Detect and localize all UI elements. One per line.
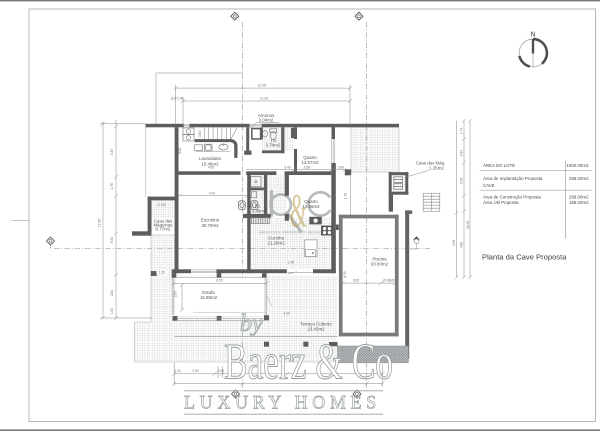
svg-text:268.00m2: 268.00m2: [569, 195, 589, 200]
svg-text:4.30: 4.30: [283, 312, 289, 316]
svg-text:2.93: 2.93: [192, 369, 198, 373]
svg-text:4.80: 4.80: [460, 242, 464, 248]
svg-text:3.48m2: 3.48m2: [252, 209, 267, 214]
svg-text:Planta da Cave Proposta: Planta da Cave Proposta: [482, 253, 567, 262]
svg-text:1.89: 1.89: [460, 150, 464, 156]
svg-text:(2.67).45: (2.67).45: [171, 97, 184, 101]
svg-text:8.35: 8.35: [343, 271, 347, 277]
svg-text:1.45: 1.45: [288, 260, 294, 264]
svg-text:Área de Construção Proposta: Área de Construção Proposta: [483, 195, 541, 200]
svg-text:3.95: 3.95: [353, 278, 359, 282]
svg-text:Escritório: Escritório: [201, 218, 220, 223]
svg-text:5.53: 5.53: [110, 237, 114, 244]
svg-text:N: N: [530, 32, 535, 39]
svg-text:6.55: 6.55: [216, 279, 222, 283]
svg-text:93.80m2: 93.80m2: [371, 262, 389, 267]
svg-text:(1.00): (1.00): [157, 203, 165, 207]
svg-text:3.28: 3.28: [178, 148, 182, 154]
svg-text:1.30: 1.30: [174, 369, 180, 373]
svg-text:Baerz & Co: Baerz & Co: [224, 335, 393, 391]
svg-text:ÁREA DO LOTE: ÁREA DO LOTE: [483, 163, 515, 168]
svg-text:23.43m2: 23.43m2: [307, 327, 325, 332]
svg-text:Área Útil Proposta: Área Útil Proposta: [483, 200, 519, 205]
svg-text:168.00m2: 168.00m2: [569, 200, 589, 205]
svg-text:4.30: 4.30: [452, 240, 456, 246]
svg-text:LUXURY HOMES: LUXURY HOMES: [184, 393, 381, 414]
svg-text:268.00m2: 268.00m2: [569, 176, 589, 181]
svg-text:1.55: 1.55: [159, 271, 165, 275]
svg-text:21.28m2: 21.28m2: [267, 241, 285, 246]
svg-text:2.85: 2.85: [174, 291, 178, 297]
svg-text:CAVE: CAVE: [483, 183, 495, 188]
svg-text:17.65: 17.65: [98, 219, 102, 228]
svg-text:Lavandaria: Lavandaria: [199, 156, 221, 161]
svg-text:0.80: 0.80: [338, 165, 344, 169]
svg-text:5.40: 5.40: [284, 165, 290, 169]
svg-text:3.58: 3.58: [303, 165, 309, 169]
svg-text:13.57m2: 13.57m2: [301, 160, 319, 165]
svg-text:16.58: 16.58: [466, 221, 470, 229]
svg-text:30.79m2: 30.79m2: [201, 223, 219, 228]
svg-text:10.48m2: 10.48m2: [201, 161, 219, 166]
svg-text:3.47: 3.47: [110, 149, 114, 156]
svg-text:1500.00m3: 1500.00m3: [567, 163, 590, 168]
svg-text:0.77m2: 0.77m2: [156, 227, 171, 232]
svg-text:by: by: [240, 311, 263, 337]
svg-text:3.74m2: 3.74m2: [266, 143, 281, 148]
svg-text:3.28: 3.28: [460, 178, 464, 184]
svg-text:16.95m2: 16.95m2: [200, 295, 218, 300]
svg-text:2.80: 2.80: [110, 290, 114, 297]
svg-text:1.78: 1.78: [110, 183, 114, 190]
svg-text:1.70: 1.70: [344, 193, 348, 199]
svg-text:10.66m2: 10.66m2: [302, 204, 320, 209]
svg-text:4.70: 4.70: [209, 191, 215, 195]
svg-text:1.74: 1.74: [460, 128, 464, 134]
svg-text:3.04m2: 3.04m2: [259, 117, 274, 122]
svg-text:0.60: 0.60: [198, 131, 202, 137]
svg-text:1.50: 1.50: [110, 308, 114, 315]
svg-text:(0.08)60: (0.08)60: [383, 278, 395, 282]
svg-text:Área de Implantação Propost: Área de Implantação Proposta: [483, 176, 543, 181]
svg-text:12.30: 12.30: [258, 84, 267, 88]
svg-text:1.35m2: 1.35m2: [429, 166, 444, 171]
svg-text:11.23: 11.23: [260, 97, 268, 101]
